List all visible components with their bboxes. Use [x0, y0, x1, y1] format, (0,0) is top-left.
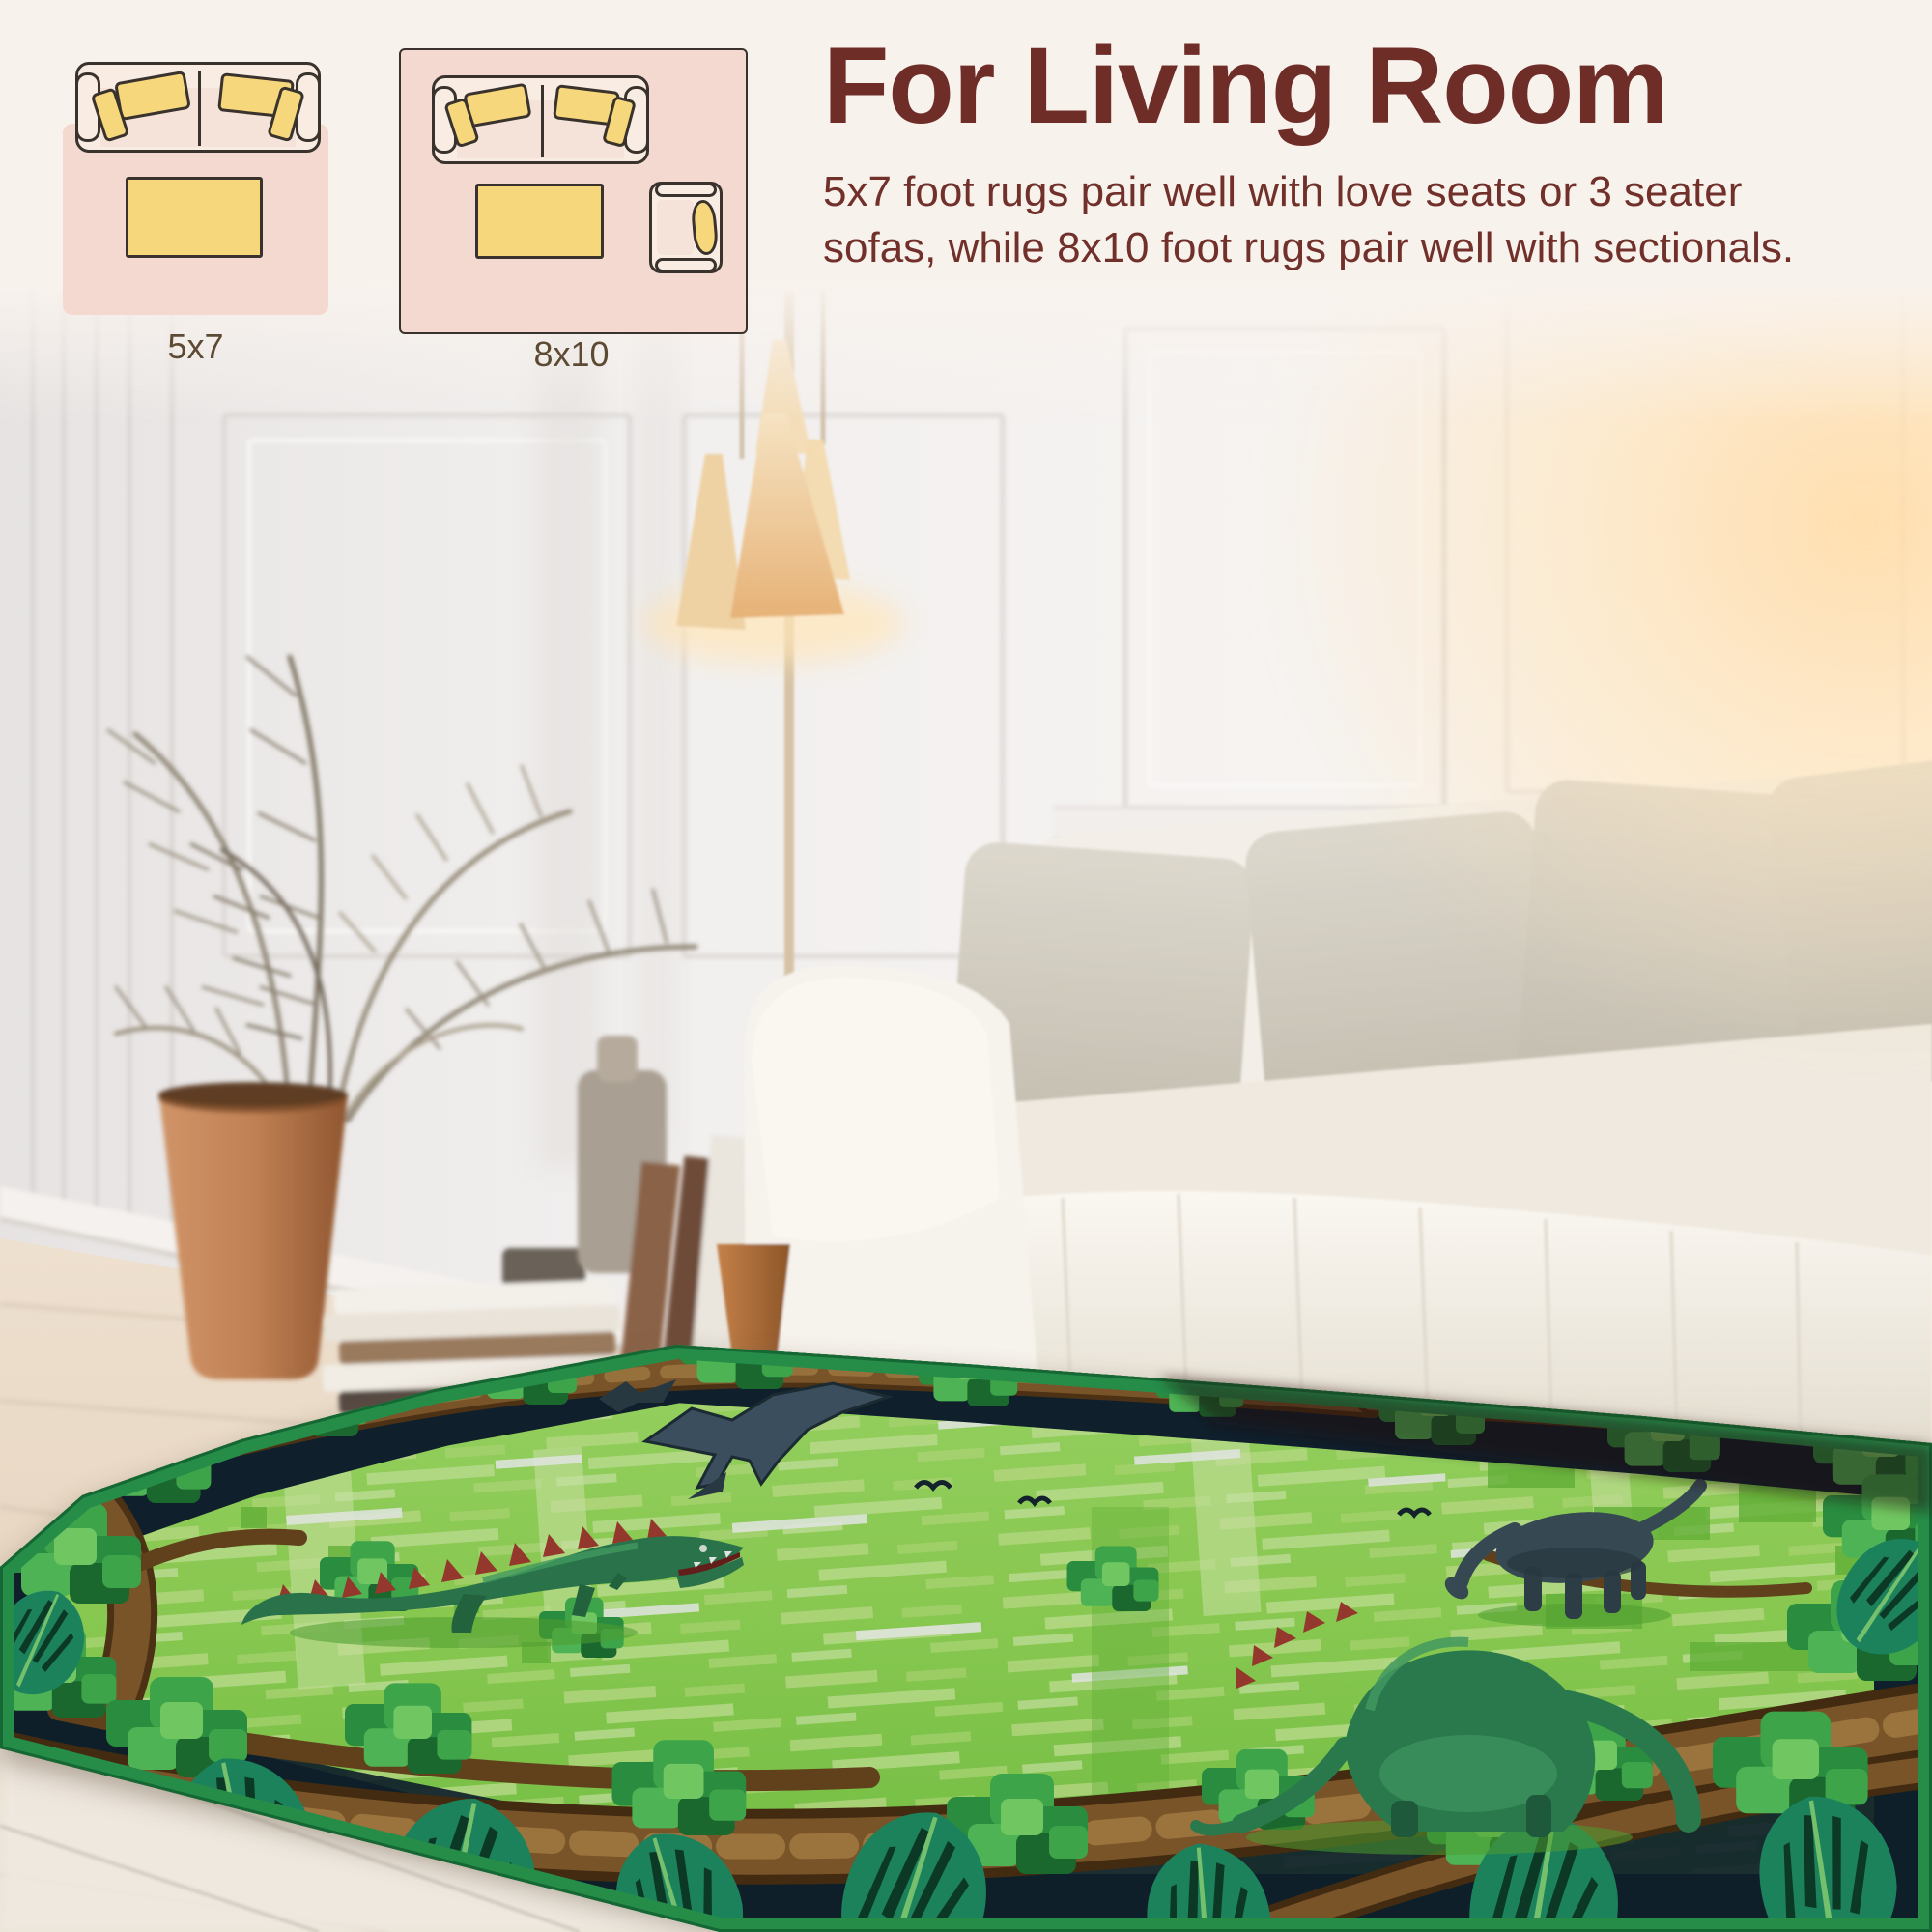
page-description: 5x7 foot rugs pair well with love seats …: [823, 164, 1924, 276]
headline-block: For Living Room 5x7 foot rugs pair well …: [823, 29, 1924, 276]
rug-size-label-5x7: 5x7: [63, 327, 328, 367]
rug-size-label-8x10: 8x10: [399, 334, 744, 375]
loveseat-top-view-icon: [75, 62, 321, 153]
coffee-table-icon: [475, 184, 604, 259]
page-title: For Living Room: [823, 29, 1924, 143]
sofa-top-view-icon: [432, 75, 649, 164]
product-infographic: For Living Room 5x7 foot rugs pair well …: [0, 0, 1932, 1932]
armchair-top-view-icon: [649, 182, 723, 273]
coffee-table-icon: [126, 177, 263, 258]
